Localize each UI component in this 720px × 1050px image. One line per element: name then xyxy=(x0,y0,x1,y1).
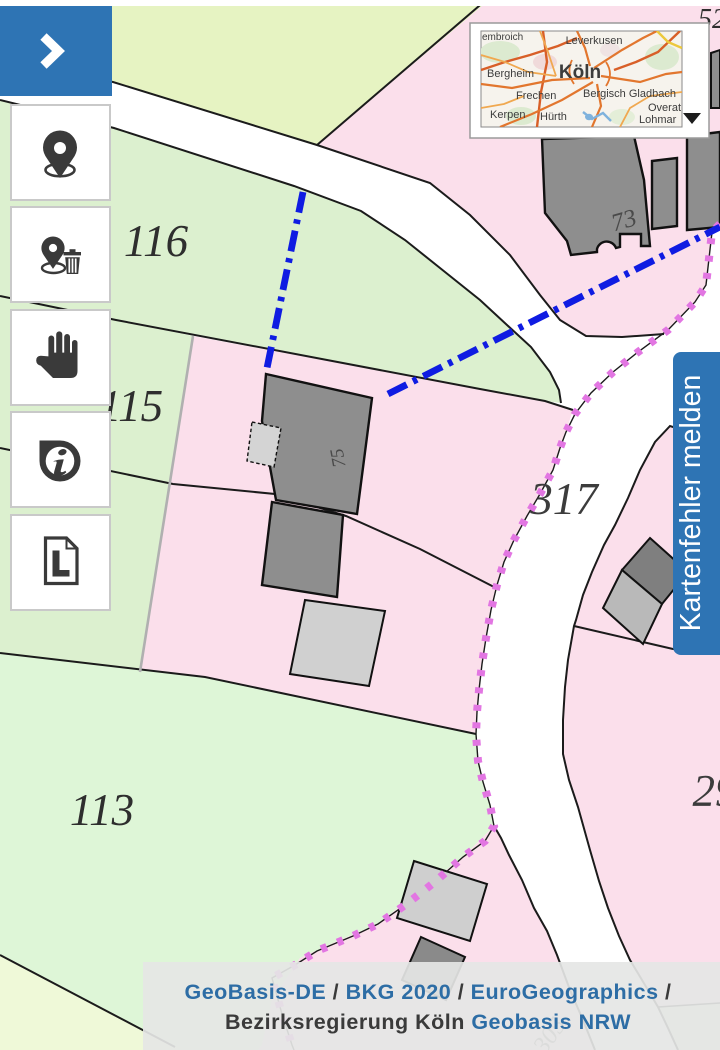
svg-text:Frechen: Frechen xyxy=(516,90,556,102)
svg-text:116: 116 xyxy=(124,216,189,266)
svg-text:29: 29 xyxy=(693,766,720,816)
svg-text:75: 75 xyxy=(327,447,351,469)
svg-text:Overat: Overat xyxy=(648,102,681,114)
svg-text:GeoBasis-DE / BKG 2020 / EuroG: GeoBasis-DE / BKG 2020 / EuroGeographics… xyxy=(184,980,671,1004)
svg-text:Leverkusen: Leverkusen xyxy=(566,35,623,47)
svg-text:317: 317 xyxy=(529,474,600,524)
svg-text:Hürth: Hürth xyxy=(540,111,567,123)
svg-text:embroich: embroich xyxy=(482,32,523,43)
svg-text:Bergheim: Bergheim xyxy=(487,68,534,80)
svg-text:Bezirksregierung Köln Geobasis: Bezirksregierung Köln Geobasis NRW xyxy=(225,1010,631,1034)
svg-text:Kerpen: Kerpen xyxy=(490,109,525,121)
svg-text:113: 113 xyxy=(70,785,134,835)
svg-text:Bergisch Gladbach: Bergisch Gladbach xyxy=(583,88,676,100)
svg-text:Köln: Köln xyxy=(559,62,601,83)
svg-text:Kartenfehler melden: Kartenfehler melden xyxy=(675,375,707,632)
svg-text:Lohmar: Lohmar xyxy=(639,114,677,126)
